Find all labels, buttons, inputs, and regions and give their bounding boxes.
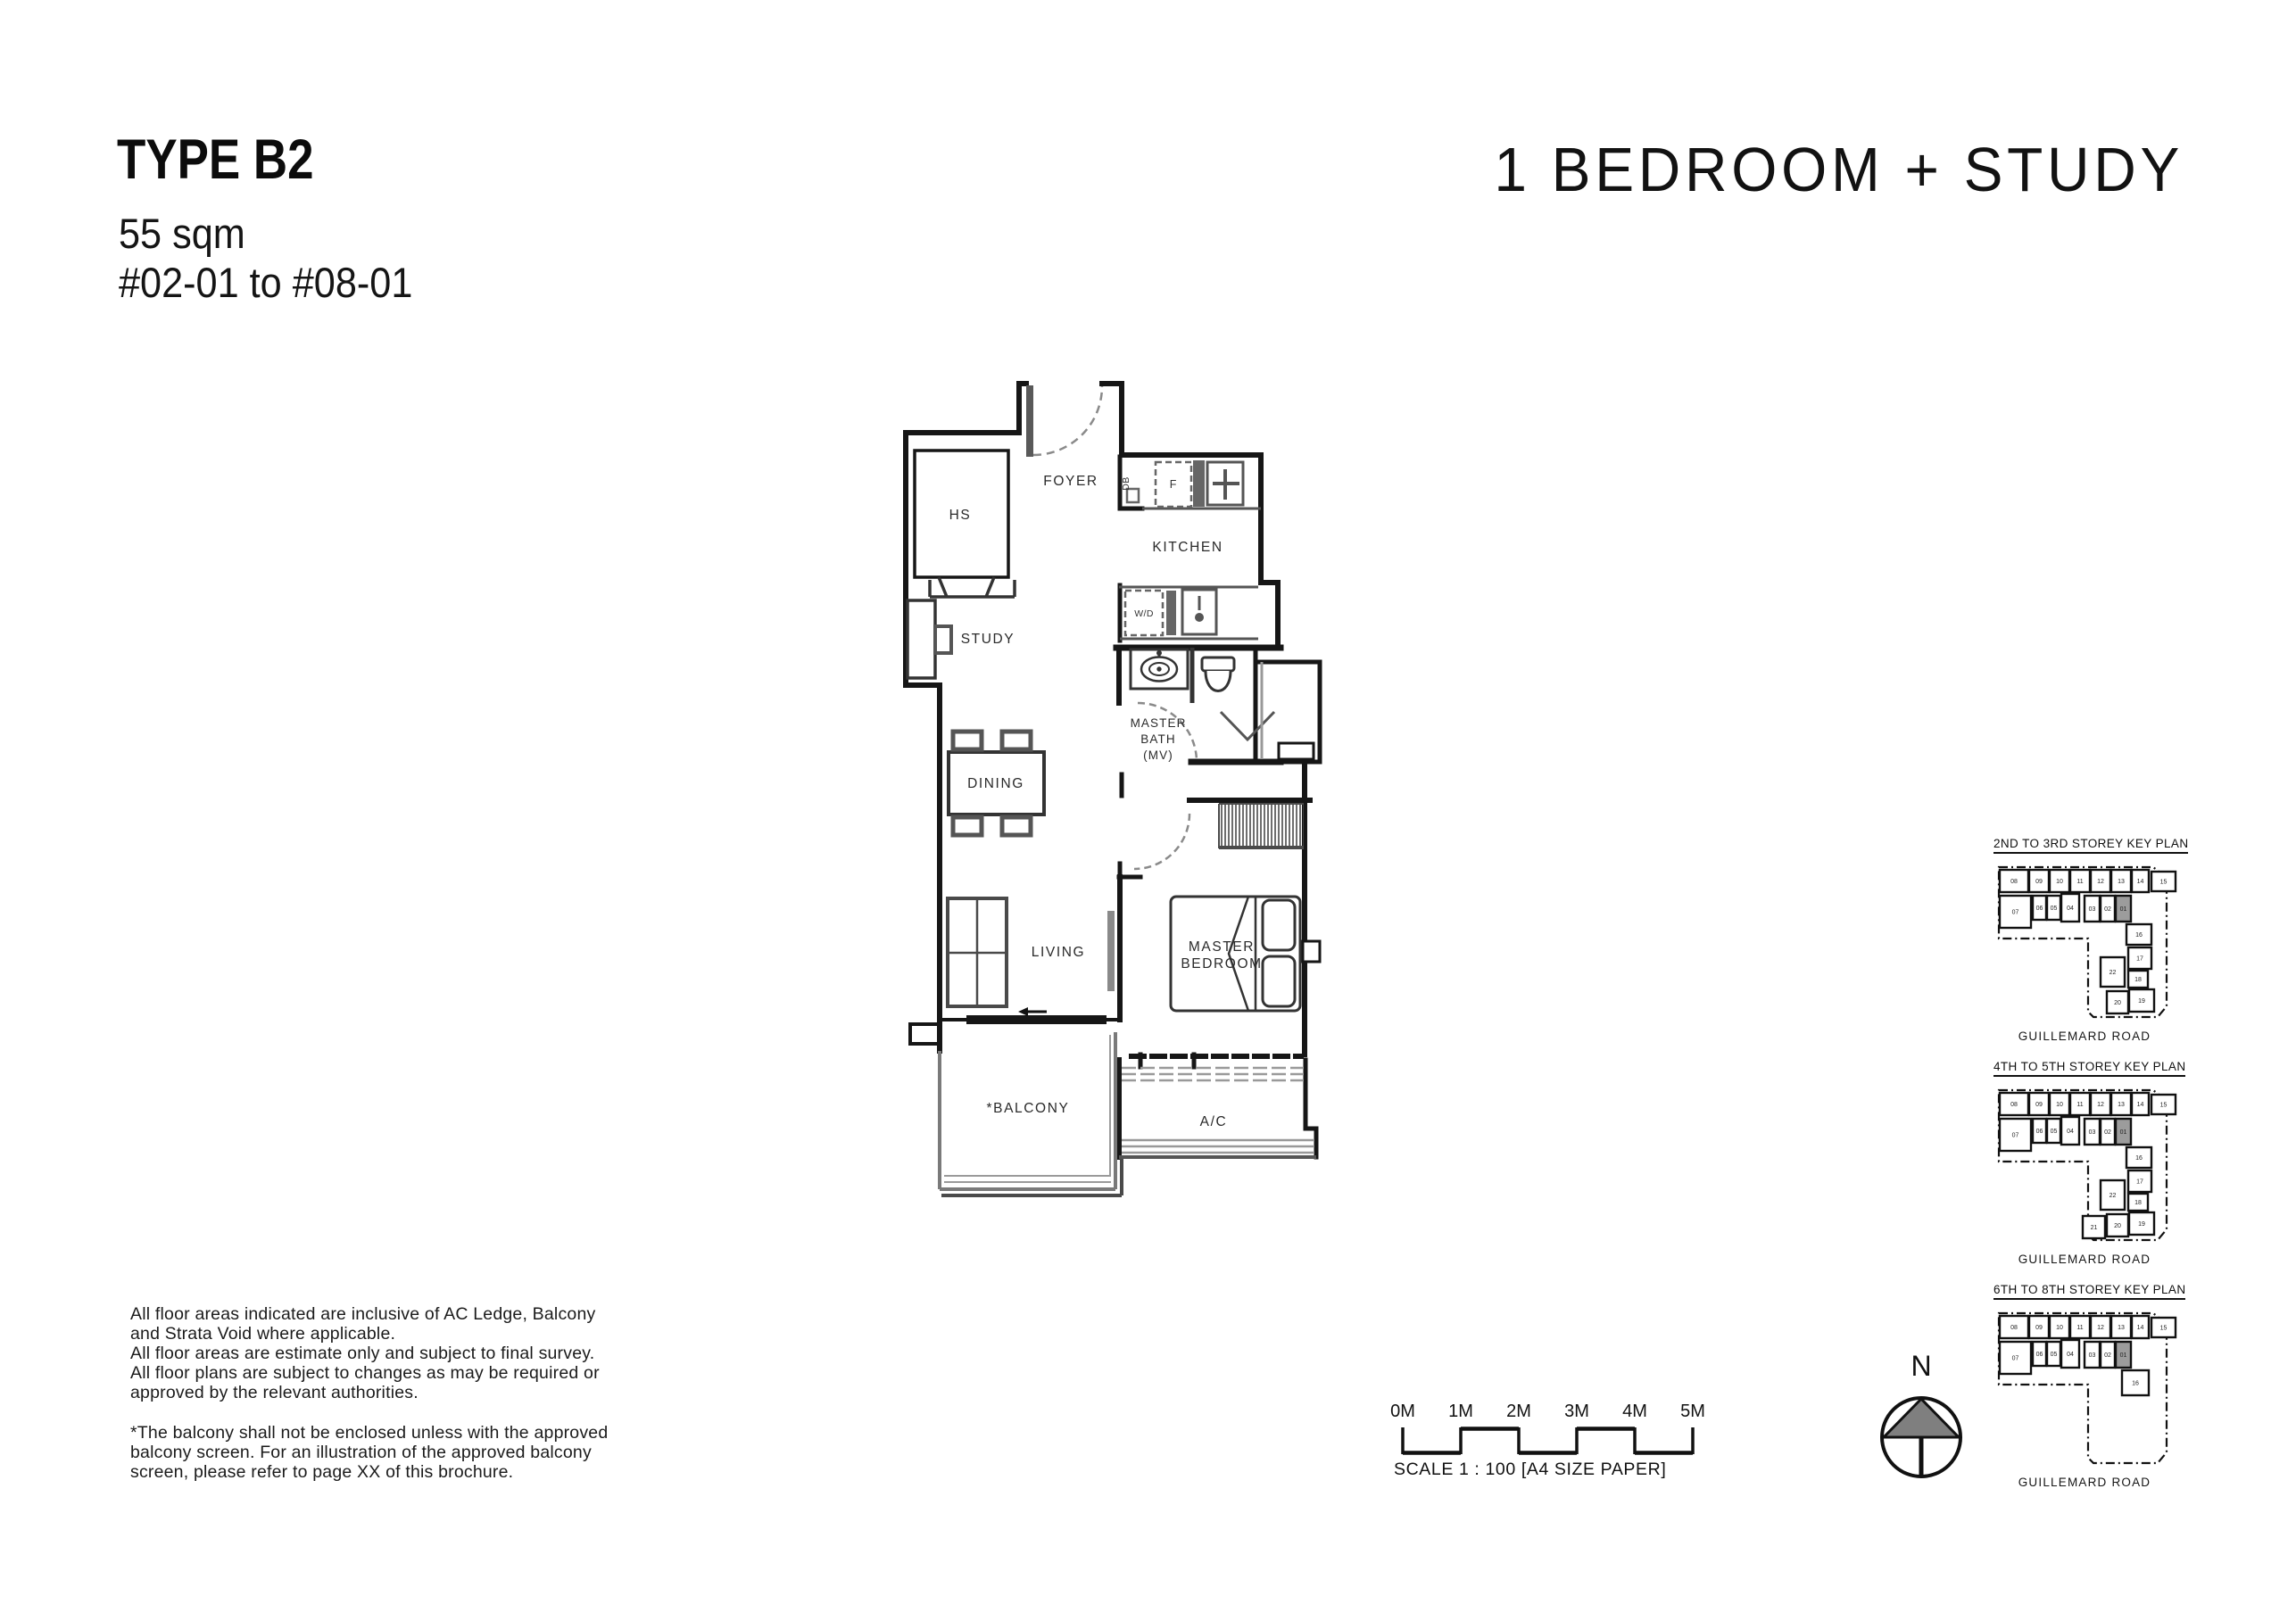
scale-labels: 0M1M2M3M4M5M xyxy=(1390,1402,1705,1421)
keyplan-unit-number: 17 xyxy=(2136,956,2143,963)
note-line: *The balcony shall not be enclosed unles… xyxy=(130,1423,608,1443)
keyplan-unit-number: 11 xyxy=(2076,1102,2083,1108)
keyplan-unit-number: 08 xyxy=(2010,1325,2018,1331)
note-line: All floor areas are estimate only and su… xyxy=(130,1344,608,1363)
keyplan-unit-number: 02 xyxy=(2104,1352,2111,1359)
keyplan-unit-number: 09 xyxy=(2035,1325,2043,1331)
dining-label: DINING xyxy=(967,776,1024,791)
keyplan-unit-number: 04 xyxy=(2067,1129,2074,1135)
disclaimer-notes: All floor areas indicated are inclusive … xyxy=(130,1304,608,1482)
keyplan-unit-number: 16 xyxy=(2135,1155,2143,1162)
keyplan-unit-number: 07 xyxy=(2012,1356,2019,1362)
road-label: GUILLEMARD ROAD xyxy=(2013,1253,2156,1266)
keyplan-unit-number: 17 xyxy=(2136,1179,2143,1186)
note-line: approved by the relevant authorities. xyxy=(130,1383,608,1402)
keyplan-unit-number: 08 xyxy=(2010,1102,2018,1108)
keyplan-unit-number: 01 xyxy=(2120,906,2127,913)
master-bedroom-label-1: MASTER xyxy=(1189,939,1255,955)
keyplan-unit-number: 06 xyxy=(2036,1129,2043,1135)
floor-plan: FOYER HS KITCHEN DB F W/D STUDY MASTER B… xyxy=(888,375,1441,1222)
dining-chair xyxy=(1002,732,1031,749)
note-line: All floor areas indicated are inclusive … xyxy=(130,1304,608,1324)
toilet-bowl-icon xyxy=(1206,671,1231,691)
keyplan-unit-number: 06 xyxy=(2036,1352,2043,1358)
counter-divider-2 xyxy=(1166,591,1176,635)
scale-caption: SCALE 1 : 100 [A4 SIZE PAPER] xyxy=(1394,1460,1666,1479)
keyplan-unit-number: 07 xyxy=(2012,1133,2019,1139)
keyplan-unit-number: 11 xyxy=(2076,879,2083,885)
keyplan-unit-number: 21 xyxy=(2091,1225,2098,1231)
keyplan-unit-number: 10 xyxy=(2056,1102,2063,1108)
road-label: GUILLEMARD ROAD xyxy=(2013,1476,2156,1489)
keyplan-unit-number: 13 xyxy=(2118,879,2125,885)
hs-label: HS xyxy=(949,508,972,523)
dining-chair xyxy=(1002,817,1031,835)
entry-door-arc xyxy=(1033,386,1102,455)
keyplan-unit-number: 05 xyxy=(2051,1129,2058,1135)
road-label: GUILLEMARD ROAD xyxy=(2013,1030,2156,1043)
keyplan-unit-number: 12 xyxy=(2097,879,2104,885)
notes-paragraph-1: All floor areas indicated are inclusive … xyxy=(130,1304,608,1402)
keyplan-unit-number: 05 xyxy=(2051,906,2058,912)
keyplan-unit-number: 11 xyxy=(2076,1325,2083,1331)
keyplan-unit-number: 16 xyxy=(2135,932,2143,939)
keyplan-unit-number: 10 xyxy=(2056,879,2063,885)
shower-door xyxy=(1221,712,1274,740)
living-label: LIVING xyxy=(1032,945,1085,960)
keyplan-unit-number: 22 xyxy=(2110,1193,2117,1199)
keyplan-unit-number: 18 xyxy=(2134,1200,2142,1206)
keyplan-unit-number: 03 xyxy=(2089,1352,2096,1359)
keyplan-map: 0809101112131415070605040302011617182221… xyxy=(1988,1079,2296,1251)
keyplan-unit-number: 12 xyxy=(2097,1102,2104,1108)
keyplan-unit-number: 02 xyxy=(2104,906,2111,913)
keyplan-unit-number: 04 xyxy=(2067,1352,2074,1358)
brochure-page: TYPE B2 55 sqm #02-01 to #08-01 1 BEDROO… xyxy=(0,0,2296,1621)
master-bath-label-1: MASTER xyxy=(1131,716,1187,730)
unit-category-title: 1 BEDROOM + STUDY xyxy=(1494,134,2184,205)
note-line: All floor plans are subject to changes a… xyxy=(130,1363,608,1383)
keyplan-unit-number: 14 xyxy=(2137,879,2144,885)
window-seat xyxy=(1279,743,1314,759)
keyplan-title: 2ND TO 3RD STOREY KEY PLAN xyxy=(1993,837,2188,854)
fridge-label: F xyxy=(1170,478,1177,491)
note-line: and Strata Void where applicable. xyxy=(130,1324,608,1344)
scale-tick-label: 0M xyxy=(1390,1402,1415,1421)
keyplan-unit-number: 20 xyxy=(2114,1000,2121,1006)
kitchen-label: KITCHEN xyxy=(1152,540,1223,555)
balcony-label: *BALCONY xyxy=(987,1101,1070,1116)
pillow xyxy=(1263,900,1295,950)
keyplan-title: 6TH TO 8TH STOREY KEY PLAN xyxy=(1993,1283,2185,1300)
keyplan-6th-8th: 6TH TO 8TH STOREY KEY PLAN 0809101112131… xyxy=(1988,1283,2296,1506)
keyplan-unit-number: 16 xyxy=(2132,1381,2139,1387)
sink2-drain-icon xyxy=(1195,613,1204,622)
note-line: balcony screen. For an illustration of t… xyxy=(130,1443,608,1462)
keyplan-unit-number: 10 xyxy=(2056,1325,2063,1331)
keyplan-unit-number: 15 xyxy=(2160,1326,2168,1332)
pillow xyxy=(1263,956,1295,1006)
north-compass: N xyxy=(1874,1351,1972,1485)
keyplan-unit-number: 01 xyxy=(2120,1129,2127,1136)
note-line: screen, please refer to page XX of this … xyxy=(130,1462,608,1482)
keyplan-title: 4TH TO 5TH STOREY KEY PLAN xyxy=(1993,1060,2185,1077)
ac-label: A/C xyxy=(1200,1114,1228,1129)
keyplan-unit-number: 19 xyxy=(2138,1221,2145,1228)
bedroom-door-arc xyxy=(1134,814,1189,869)
north-label: N xyxy=(1911,1351,1931,1382)
unit-range: #02-01 to #08-01 xyxy=(119,258,412,307)
keyplan-unit-number: 04 xyxy=(2067,906,2074,912)
keyplan-unit-number: 05 xyxy=(2051,1352,2058,1358)
ac-ledge xyxy=(1119,1068,1316,1157)
scale-bar-lines xyxy=(1403,1427,1693,1454)
keyplan-4th-5th: 4TH TO 5TH STOREY KEY PLAN 0809101112131… xyxy=(1988,1060,2296,1283)
keyplan-unit-number: 07 xyxy=(2012,910,2019,916)
keyplan-unit-number: 06 xyxy=(2036,906,2043,912)
keyplan-unit-number: 14 xyxy=(2137,1102,2144,1108)
keyplan-unit-number: 14 xyxy=(2137,1325,2144,1331)
keyplan-unit-number: 02 xyxy=(2104,1129,2111,1136)
keyplan-unit-number: 18 xyxy=(2134,977,2142,983)
scale-tick-label: 1M xyxy=(1448,1402,1473,1421)
keyplan-unit-number: 01 xyxy=(2120,1352,2127,1359)
entry-door-leaf xyxy=(1026,385,1033,457)
study-label: STUDY xyxy=(961,632,1015,647)
keyplan-unit-number: 13 xyxy=(2118,1102,2125,1108)
keyplan-map: 08091011121314150706050403020116 xyxy=(1988,1303,2296,1474)
keyplan-unit-number: 12 xyxy=(2097,1325,2104,1331)
master-bath-label-3: (MV) xyxy=(1143,748,1173,762)
db-label: DB xyxy=(1121,476,1131,490)
keyplan-unit-number: 13 xyxy=(2118,1325,2125,1331)
keyplan-unit-number: 09 xyxy=(2035,879,2043,885)
keyplan-unit-number: 03 xyxy=(2089,906,2096,913)
bedroom-sliding-panel xyxy=(1107,911,1115,991)
keyplan-unit-number: 08 xyxy=(2010,879,2018,885)
page-title: TYPE B2 xyxy=(117,128,314,192)
wd-label: W/D xyxy=(1134,608,1154,619)
counter-divider xyxy=(1193,460,1205,507)
scale-tick-label: 2M xyxy=(1506,1402,1531,1421)
keyplan-2nd-3rd: 2ND TO 3RD STOREY KEY PLAN 0809101112131… xyxy=(1988,837,2296,1060)
north-arrow-icon xyxy=(1884,1399,1959,1437)
dining-chair xyxy=(953,817,982,835)
master-bedroom-label-2: BEDROOM xyxy=(1181,956,1262,972)
foyer-label: FOYER xyxy=(1043,474,1098,489)
hs-platform xyxy=(930,577,1015,597)
master-bath-label-2: BATH xyxy=(1140,732,1175,746)
scale-tick-label: 3M xyxy=(1564,1402,1589,1421)
keyplan-unit-number: 19 xyxy=(2138,998,2145,1005)
notes-paragraph-2: *The balcony shall not be enclosed unles… xyxy=(130,1423,608,1482)
scale-tick-label: 4M xyxy=(1622,1402,1647,1421)
unit-area: 55 sqm xyxy=(119,209,245,258)
bedroom-window-notch xyxy=(1303,941,1320,962)
wardrobe xyxy=(1219,804,1304,848)
toilet-tank-icon xyxy=(1202,657,1234,671)
dining-chair xyxy=(953,732,982,749)
keyplan-map: 0809101112131415070605040302011617182220… xyxy=(1988,856,2296,1028)
study-desk xyxy=(908,600,935,678)
keyplan-unit-number: 03 xyxy=(2089,1129,2096,1136)
keyplan-unit-number: 09 xyxy=(2035,1102,2043,1108)
keyplan-unit-number: 22 xyxy=(2110,970,2117,976)
keyplan-unit-number: 20 xyxy=(2114,1223,2121,1229)
keyplan-unit-number: 15 xyxy=(2160,880,2168,886)
scale-tick-label: 5M xyxy=(1680,1402,1705,1421)
scale-bar: 0M1M2M3M4M5M SCALE 1 : 100 [A4 SIZE PAPE… xyxy=(1379,1402,1709,1483)
keyplan-unit-number: 15 xyxy=(2160,1103,2168,1109)
study-chair xyxy=(935,626,951,653)
